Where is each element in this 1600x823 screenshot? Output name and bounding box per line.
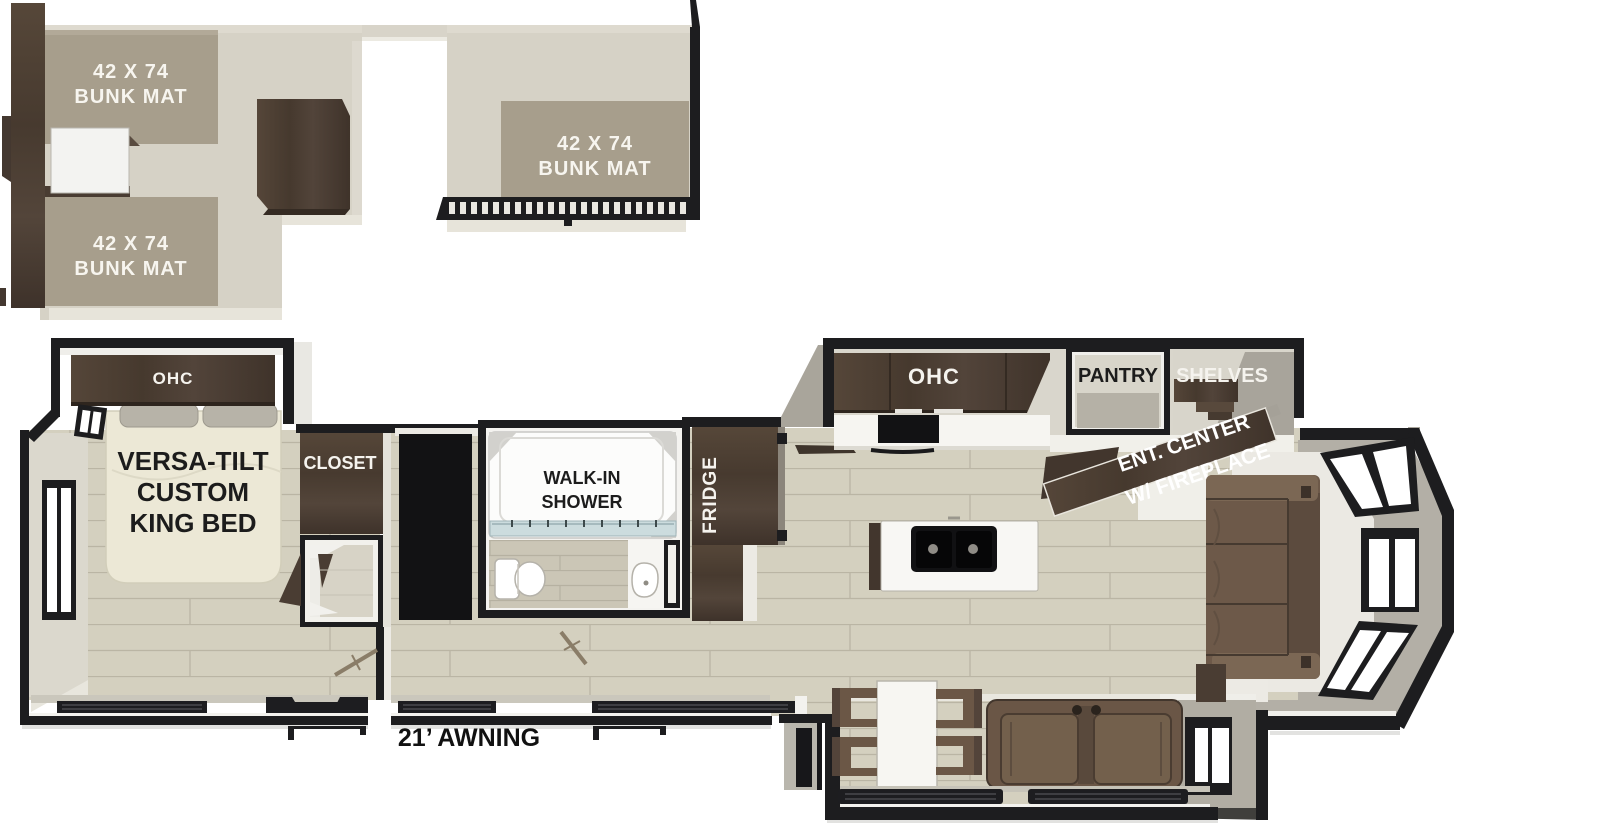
svg-text:BUNK MAT: BUNK MAT bbox=[74, 86, 187, 108]
svg-text:CUSTOM: CUSTOM bbox=[137, 477, 249, 507]
svg-text:FRIDGE: FRIDGE bbox=[700, 456, 721, 534]
svg-text:KING BED: KING BED bbox=[129, 508, 256, 538]
svg-text:BUNK MAT: BUNK MAT bbox=[74, 258, 187, 280]
svg-text:42 X 74: 42 X 74 bbox=[93, 233, 169, 255]
svg-text:42 X 74: 42 X 74 bbox=[93, 61, 169, 83]
svg-text:OHC: OHC bbox=[153, 369, 194, 388]
svg-text:VERSA-TILT: VERSA-TILT bbox=[117, 446, 268, 476]
svg-text:PANTRY: PANTRY bbox=[1078, 365, 1159, 387]
svg-text:SHELVES: SHELVES bbox=[1176, 365, 1268, 387]
svg-text:CLOSET: CLOSET bbox=[303, 453, 376, 473]
svg-text:21’ AWNING: 21’ AWNING bbox=[398, 724, 540, 752]
svg-text:BUNK MAT: BUNK MAT bbox=[538, 158, 651, 180]
svg-text:42 X 74: 42 X 74 bbox=[557, 133, 633, 155]
svg-text:WALK-IN: WALK-IN bbox=[544, 468, 621, 488]
svg-text:OHC: OHC bbox=[908, 364, 960, 389]
svg-text:SHOWER: SHOWER bbox=[542, 492, 623, 512]
